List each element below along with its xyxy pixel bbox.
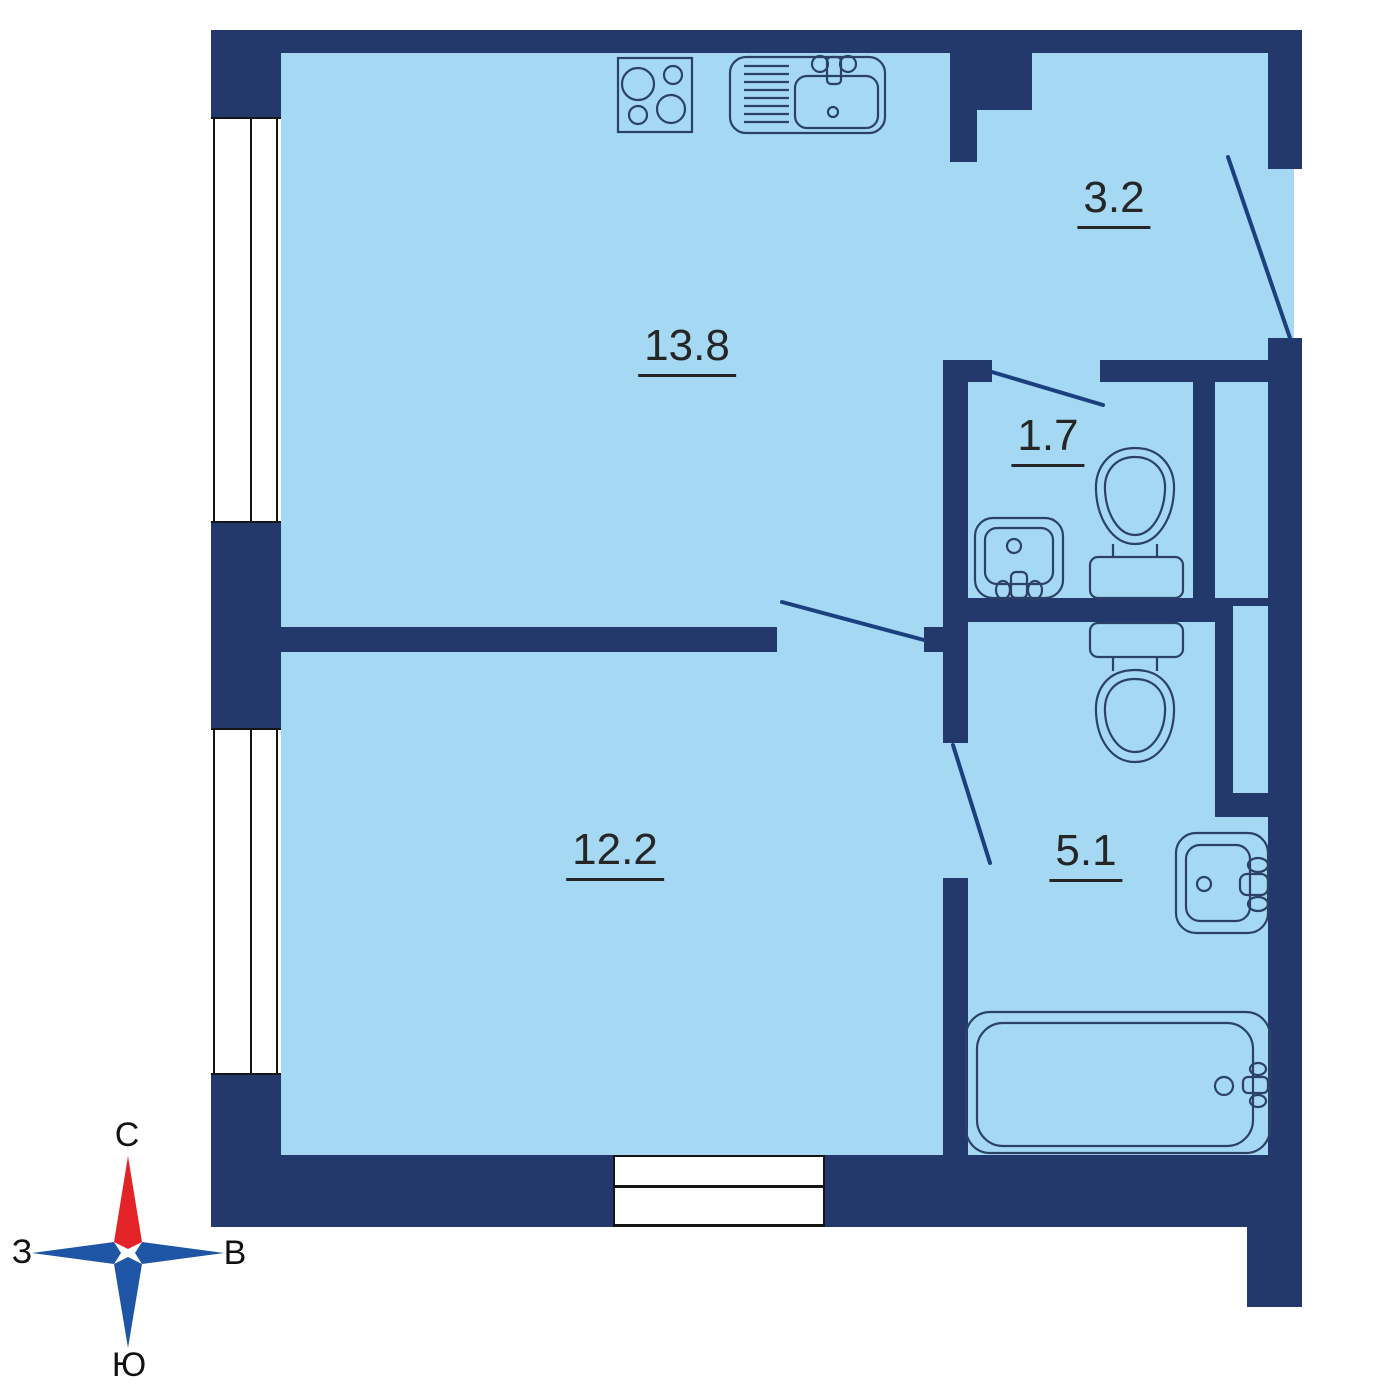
floor-entry-opening — [1268, 169, 1294, 340]
wall-wc-top-left — [943, 360, 992, 382]
compass-north-label: С — [115, 1118, 140, 1152]
compass-south-arm — [114, 1257, 142, 1348]
wall-bottom-right-step — [1247, 1227, 1302, 1307]
room-area-label-hallway: 3.2 — [1077, 176, 1150, 229]
window-frame-line — [276, 730, 278, 1073]
compass-west-label: З — [12, 1235, 33, 1269]
window-frame-line — [276, 119, 278, 521]
window-frame-line — [250, 730, 252, 1073]
compass-south-label: Ю — [112, 1348, 146, 1382]
room-area-label-bathroom: 5.1 — [1049, 829, 1122, 882]
wall-partition-stub — [924, 627, 943, 652]
wall-top — [211, 30, 1302, 53]
wall-right-main — [1268, 338, 1302, 1227]
compass-rose — [32, 1156, 224, 1348]
room-area-label-wc: 1.7 — [1011, 414, 1084, 467]
wall-wc-bottom — [943, 598, 1215, 622]
window-frame-line — [250, 119, 252, 521]
wall-kitchen-nib — [977, 53, 1032, 110]
balcony-door-frame-line — [615, 1185, 823, 1188]
compass-west-arm — [32, 1242, 121, 1264]
window-frame-line — [213, 730, 215, 1073]
wall-duct-lower-left — [1215, 598, 1233, 793]
wall-wc-left — [943, 360, 968, 743]
compass-east-arm — [135, 1242, 224, 1264]
floor-plan-canvas: 13.8 3.2 1.7 12.2 5.1 С Ю З В — [0, 0, 1400, 1400]
wall-duct-lower-top — [1233, 598, 1268, 606]
window-left-2 — [211, 728, 281, 1075]
window-left-1 — [211, 117, 281, 523]
wall-kitchen-stub — [950, 53, 977, 162]
window-frame-line — [213, 119, 215, 521]
wall-left-pier — [211, 522, 281, 728]
room-area-label-kitchen-living: 13.8 — [638, 324, 736, 377]
wall-bottom-right — [825, 1155, 1302, 1227]
compass-east-label: В — [224, 1236, 247, 1270]
wall-duct-upper — [1193, 382, 1215, 598]
balcony-door — [613, 1155, 825, 1227]
room-area-label-bedroom: 12.2 — [566, 828, 664, 881]
wall-duct-lower-bottom — [1215, 793, 1268, 817]
wall-bottom-left — [211, 1155, 613, 1227]
wall-left-top-corner — [211, 30, 281, 118]
compass-north-arm — [114, 1156, 142, 1249]
wall-partition-rooms — [281, 627, 777, 652]
wall-bathroom-left — [943, 878, 968, 1155]
wall-wc-top-right — [1100, 360, 1268, 382]
wall-right-top — [1268, 53, 1302, 169]
